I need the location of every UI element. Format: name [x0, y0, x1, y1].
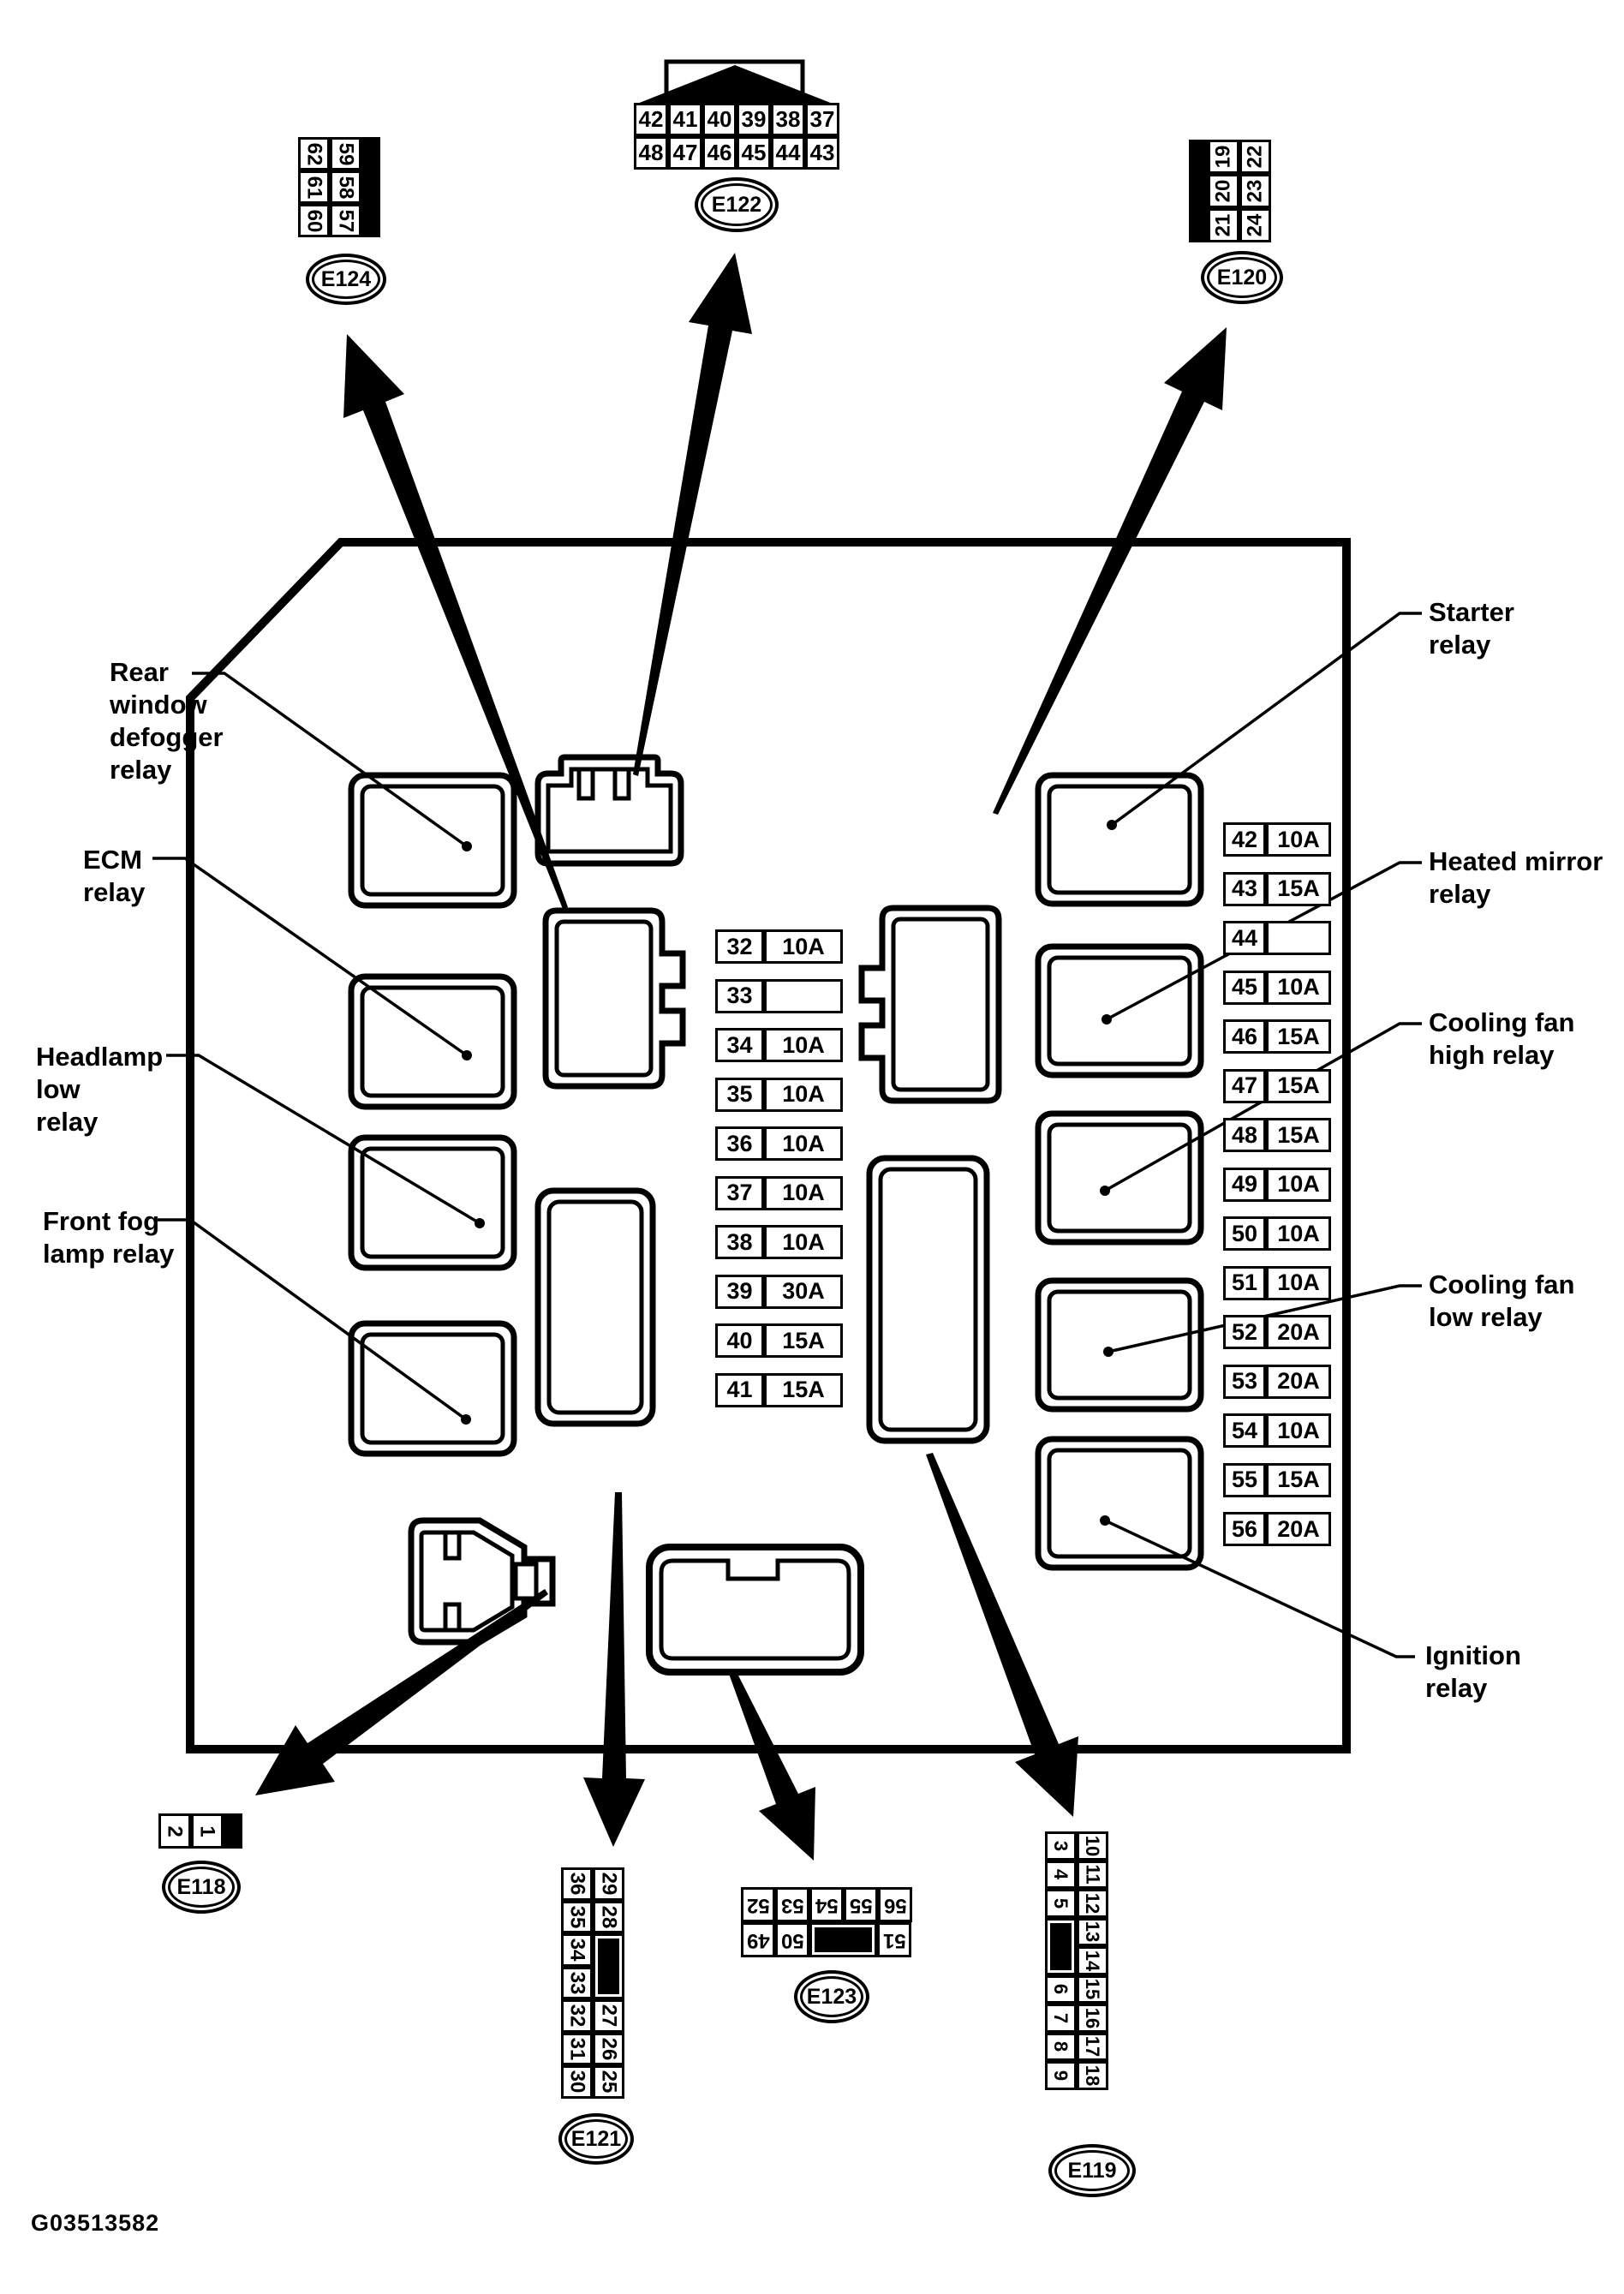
connector-tag-e120: E120	[1201, 251, 1283, 304]
fuse-row: 34 10A	[715, 1028, 843, 1062]
arrow-to-e119	[926, 1453, 1078, 1817]
fuse-row: 54 10A	[1223, 1413, 1331, 1448]
fuse-amperage: 10A	[1266, 971, 1331, 1005]
fuse-number: 56	[1223, 1512, 1266, 1546]
fuse-amperage: 20A	[1266, 1315, 1331, 1349]
pin-cell: 45	[737, 136, 771, 170]
fuse-row: 53 20A	[1223, 1365, 1331, 1399]
part-number: G03513582	[31, 2210, 159, 2237]
fuse-row: 43 15A	[1223, 872, 1331, 906]
fuse-amperage: 15A	[1266, 1463, 1331, 1497]
pin-cell: 21	[1208, 208, 1239, 242]
fuse-number: 47	[1223, 1069, 1266, 1103]
pin-cell: 42	[634, 103, 668, 136]
fuse-amperage	[764, 979, 843, 1013]
fuse-amperage: 20A	[1266, 1365, 1331, 1399]
fuse-amperage: 10A	[1266, 1216, 1331, 1251]
fuse-amperage: 10A	[764, 929, 843, 964]
pin-cell: 32	[561, 1999, 593, 2033]
leader-rear-window	[192, 673, 467, 846]
fuse-number: 40	[715, 1323, 764, 1358]
connector-e119-pin-grid: 3456789 101112131415161718	[1045, 1831, 1108, 2090]
fuse-amperage: 10A	[764, 1126, 843, 1161]
pin-cell: 39	[737, 103, 771, 136]
pin-cell: 48	[634, 136, 668, 170]
connector-tag-e123: E123	[794, 1970, 869, 2023]
fuse-number: 54	[1223, 1413, 1266, 1448]
pin-cell: 60	[298, 204, 330, 237]
pin-cell: 34	[561, 1933, 593, 1967]
pin-cell: 52	[741, 1887, 775, 1922]
fuse-row: 42 10A	[1223, 822, 1331, 857]
relay-starter	[1038, 775, 1201, 904]
fuse-amperage: 10A	[764, 1176, 843, 1210]
fuse-amperage	[1266, 921, 1331, 955]
fuse-row: 44	[1223, 921, 1331, 955]
fuse-number: 38	[715, 1225, 764, 1259]
e120-keyway-black	[1189, 140, 1208, 242]
fuse-row: 49 10A	[1223, 1168, 1331, 1202]
relay-cooling-fan-high	[1038, 1114, 1201, 1242]
fuse-amperage: 10A	[1266, 1168, 1331, 1202]
fuse-amperage: 15A	[1266, 872, 1331, 906]
pin-cell: 50	[775, 1922, 809, 1957]
connector-shape-center-left	[546, 911, 683, 1086]
pin-cell: 25	[593, 2065, 624, 2099]
fuse-number: 51	[1223, 1266, 1266, 1300]
pin-cell: 29	[593, 1867, 624, 1901]
e124-keyway-black	[361, 137, 380, 237]
fuse-amperage: 15A	[1266, 1019, 1331, 1054]
connector-shape-right-tall	[869, 1158, 987, 1441]
connector-tag-label: E124	[312, 260, 380, 299]
fuse-box-diagram: 626160 595857 424140393837 484746454443 …	[0, 0, 1624, 2294]
fuse-amperage: 10A	[764, 1078, 843, 1112]
pin-cell: 20	[1208, 174, 1239, 208]
connector-e120-pin-grid: 192021 222324	[1189, 140, 1271, 242]
pin-cell: 5	[1045, 1889, 1077, 1918]
connector-tag-label: E118	[168, 1867, 235, 1908]
fuse-number: 42	[1223, 822, 1266, 857]
connector-tag-e119: E119	[1048, 2144, 1136, 2197]
connector-e118-pin-grid: 21	[158, 1813, 242, 1849]
fuse-number: 35	[715, 1078, 764, 1112]
pin-cell: 58	[330, 170, 361, 204]
pin-cell: 18	[1077, 2061, 1108, 2090]
pin-cell: 2	[158, 1813, 191, 1849]
arrow-to-e124	[343, 334, 568, 909]
pin-cell: 46	[702, 136, 737, 170]
label-headlamp-low-relay: Headlamp low relay	[36, 1041, 163, 1138]
pin-cell: 9	[1045, 2061, 1077, 2090]
pin-cell: 23	[1239, 174, 1271, 208]
connector-tag-e121: E121	[558, 2113, 634, 2165]
pin-cell: 53	[775, 1887, 809, 1922]
fuse-row: 36 10A	[715, 1126, 843, 1161]
fuse-number: 45	[1223, 971, 1266, 1005]
pin-cell: 19	[1208, 140, 1239, 174]
pin-cell: 61	[298, 170, 330, 204]
pin-cell: 22	[1239, 140, 1271, 174]
fuse-number: 43	[1223, 872, 1266, 906]
pin-cell: 41	[668, 103, 702, 136]
fuse-number: 41	[715, 1373, 764, 1407]
connector-e122-pin-grid: 424140393837 484746454443	[634, 103, 839, 170]
fuse-row: 55 15A	[1223, 1463, 1331, 1497]
fuse-amperage: 15A	[764, 1323, 843, 1358]
arrow-to-e121	[583, 1492, 645, 1847]
fuse-amperage: 15A	[764, 1373, 843, 1407]
label-ignition-relay: Ignition relay	[1425, 1640, 1521, 1705]
connector-tag-e124: E124	[306, 254, 386, 305]
relay-cooling-fan-low	[1038, 1281, 1201, 1409]
connector-shape-bottom-left-plug	[411, 1520, 552, 1642]
pin-cell: 35	[561, 1901, 593, 1934]
arrow-to-e118	[255, 1589, 548, 1795]
pin-cell: 17	[1077, 2033, 1108, 2062]
fuse-number: 50	[1223, 1216, 1266, 1251]
fuse-row: 32 10A	[715, 929, 843, 964]
connector-shape-center-tall	[538, 1191, 653, 1424]
pin-cell: 1	[191, 1813, 224, 1849]
pin-cell	[593, 1933, 624, 1999]
fuse-row: 45 10A	[1223, 971, 1331, 1005]
pin-cell: 37	[805, 103, 839, 136]
fuse-amperage: 15A	[1266, 1069, 1331, 1103]
fuse-row: 56 20A	[1223, 1512, 1331, 1546]
pin-cell: 62	[298, 137, 330, 170]
fuse-row: 40 15A	[715, 1323, 843, 1358]
pin-cell: 14	[1077, 1946, 1108, 1975]
fuse-amperage: 10A	[1266, 822, 1331, 857]
connector-tag-label: E120	[1207, 257, 1277, 298]
relay-ecm	[351, 977, 514, 1107]
fuse-number: 46	[1223, 1019, 1266, 1054]
right-fuse-table: 42 10A 43 15A 44 45 10A 46 15A	[1223, 822, 1331, 1546]
fuse-number: 34	[715, 1028, 764, 1062]
connector-shape-center-right	[862, 908, 999, 1101]
fuse-amperage: 15A	[1266, 1118, 1331, 1152]
fuse-row: 33	[715, 979, 843, 1013]
fuse-amperage: 10A	[764, 1225, 843, 1259]
connector-shape-top-center	[538, 757, 681, 863]
label-starter-relay: Starter relay	[1429, 596, 1514, 661]
center-fuse-table: 32 10A 33 34 10A 35 10A 36 10A	[715, 929, 843, 1407]
pin-cell: 38	[771, 103, 805, 136]
relay-front-fog-lamp	[351, 1323, 514, 1454]
fuse-amperage: 20A	[1266, 1512, 1331, 1546]
fuse-amperage: 10A	[1266, 1413, 1331, 1448]
pin-cell: 56	[878, 1887, 912, 1922]
fuse-row: 38 10A	[715, 1225, 843, 1259]
fuse-number: 32	[715, 929, 764, 964]
connector-tag-label: E119	[1054, 2150, 1130, 2191]
pin-cell: 44	[771, 136, 805, 170]
connector-e123-pin-grid: 5253545556 495051	[741, 1887, 912, 1957]
pin-cell: 57	[330, 204, 361, 237]
connector-tag-label: E121	[564, 2119, 628, 2159]
pin-cell: 26	[593, 2033, 624, 2066]
pin-cell: 30	[561, 2065, 593, 2099]
pin-cell: 59	[330, 137, 361, 170]
pin-cell: 27	[593, 1999, 624, 2033]
pin-cell: 11	[1077, 1861, 1108, 1890]
relay-ignition	[1038, 1439, 1201, 1568]
connector-e124-pin-grid: 626160 595857	[298, 137, 380, 237]
fuse-row: 41 15A	[715, 1373, 843, 1407]
leader-starter	[1112, 613, 1422, 825]
relay-headlamp-low	[351, 1138, 514, 1268]
leader-front-fog	[158, 1220, 466, 1419]
fuse-amperage: 10A	[764, 1028, 843, 1062]
fuse-row: 46 15A	[1223, 1019, 1331, 1054]
connector-shape-bottom-center	[649, 1547, 861, 1672]
pin-cell: 12	[1077, 1889, 1108, 1918]
pin-cell: 54	[809, 1887, 844, 1922]
fuse-amperage: 10A	[1266, 1266, 1331, 1300]
pin-cell: 40	[702, 103, 737, 136]
fuse-number: 44	[1223, 921, 1266, 955]
pin-cell: 13	[1077, 1918, 1108, 1947]
pin-cell	[1045, 1918, 1077, 1975]
arrow-to-e120	[993, 327, 1227, 815]
pin-cell: 24	[1239, 208, 1271, 242]
relay-rear-window-defogger	[351, 775, 514, 905]
fuse-number: 49	[1223, 1168, 1266, 1202]
pin-cell: 36	[561, 1867, 593, 1901]
pin-cell: 55	[844, 1887, 878, 1922]
e118-keyway-black	[224, 1813, 242, 1849]
pin-cell: 51	[877, 1922, 911, 1957]
fuse-row: 50 10A	[1223, 1216, 1331, 1251]
pin-cell: 33	[561, 1967, 593, 2000]
fuse-row: 51 10A	[1223, 1266, 1331, 1300]
fuse-number: 53	[1223, 1365, 1266, 1399]
fuse-number: 37	[715, 1176, 764, 1210]
fuse-row: 48 15A	[1223, 1118, 1331, 1152]
arrow-to-e123	[729, 1670, 815, 1861]
fuse-number: 48	[1223, 1118, 1266, 1152]
fuse-number: 52	[1223, 1315, 1266, 1349]
fuse-number: 55	[1223, 1463, 1266, 1497]
pin-cell: 16	[1077, 2004, 1108, 2033]
pin-cell: 6	[1045, 1975, 1077, 2004]
pin-cell: 8	[1045, 2033, 1077, 2062]
connector-tag-label: E123	[800, 1976, 863, 2017]
label-rear-window-defogger-relay: Rear window defogger relay	[110, 656, 224, 786]
label-ecm-relay: ECM relay	[83, 844, 145, 909]
fuse-row: 39 30A	[715, 1275, 843, 1309]
fuse-row: 37 10A	[715, 1176, 843, 1210]
label-heated-mirror-relay: Heated mirror relay	[1429, 845, 1603, 911]
fuse-row: 35 10A	[715, 1078, 843, 1112]
pin-cell: 28	[593, 1901, 624, 1934]
fuse-row: 52 20A	[1223, 1315, 1331, 1349]
label-cooling-fan-low-relay: Cooling fan low relay	[1429, 1269, 1574, 1334]
pin-cell: 10	[1077, 1831, 1108, 1861]
connector-tag-e122: E122	[695, 177, 779, 232]
pin-cell: 47	[668, 136, 702, 170]
pin-cell: 31	[561, 2033, 593, 2066]
fuse-number: 36	[715, 1126, 764, 1161]
connector-tag-e118: E118	[162, 1861, 241, 1914]
arrow-to-e122	[633, 253, 752, 776]
label-cooling-fan-high-relay: Cooling fan high relay	[1429, 1007, 1574, 1072]
pin-cell: 49	[741, 1922, 775, 1957]
pin-cell: 7	[1045, 2004, 1077, 2033]
connector-tag-label: E122	[701, 183, 773, 226]
pin-cell: 3	[1045, 1831, 1077, 1861]
pin-cell: 15	[1077, 1975, 1108, 2004]
leader-ecm	[152, 858, 467, 1055]
pin-cell: 43	[805, 136, 839, 170]
pin-cell: 4	[1045, 1861, 1077, 1890]
fuse-amperage: 30A	[764, 1275, 843, 1309]
connector-e121-pin-grid: 36353433323130 2928272625	[561, 1867, 624, 2099]
fuse-number: 39	[715, 1275, 764, 1309]
pin-cell	[809, 1922, 877, 1957]
fuse-row: 47 15A	[1223, 1069, 1331, 1103]
fuse-number: 33	[715, 979, 764, 1013]
label-front-fog-lamp-relay: Front fog lamp relay	[43, 1205, 174, 1270]
